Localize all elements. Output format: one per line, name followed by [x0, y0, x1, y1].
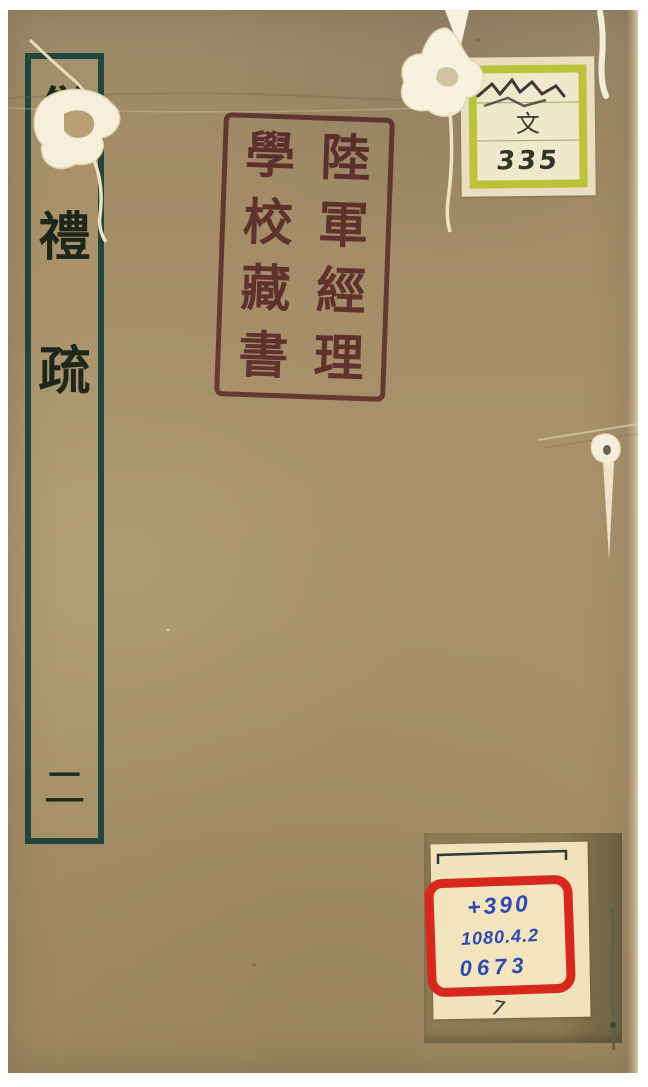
classification-category-row: 文: [477, 102, 579, 141]
title-character-3: 疏: [31, 346, 98, 398]
library-seal-stamp: 學 校 藏 書 陸 軍 經 理: [214, 112, 395, 402]
seal-character: 陸: [320, 133, 372, 185]
title-character-1: 儀: [31, 87, 98, 139]
seal-character: 學: [244, 130, 296, 182]
paper-tear-tail: [603, 462, 614, 560]
call-number-line-1: +390: [439, 890, 558, 921]
classification-label: 文 335: [460, 56, 595, 196]
seal-right-column: 陸 軍 經 理: [300, 124, 385, 392]
seal-character: 理: [313, 332, 365, 384]
seal-character: 藏: [240, 263, 292, 315]
seal-character: 校: [242, 197, 294, 249]
seal-character: 軍: [318, 199, 370, 251]
call-number-line-3: 0673: [435, 953, 554, 981]
call-number-line-2: 1080.4.2: [441, 924, 560, 948]
crease-line: [538, 424, 638, 440]
paper-tear-shadow: [436, 67, 458, 86]
classification-number-row: 335: [475, 140, 582, 180]
paper-tear-tail: [447, 112, 451, 232]
paper-tear: [600, 12, 606, 96]
book-cover-photo: 儀 禮 疏 二 學 校 藏 書 陸 軍 經 理: [8, 10, 638, 1073]
title-slip: 儀 禮 疏 二: [25, 53, 104, 844]
category-character: 文: [516, 104, 540, 139]
shelf-number: 335: [495, 145, 562, 176]
seal-character: 書: [237, 330, 289, 382]
speck: [476, 38, 480, 42]
classification-label-border: 文 335: [468, 64, 587, 188]
cover-right-edge: [627, 10, 638, 1073]
volume-number: 二: [31, 767, 98, 809]
scan-page: 儀 禮 疏 二 學 校 藏 書 陸 軍 經 理: [0, 0, 648, 1087]
paper-tear: [445, 10, 469, 50]
title-character-2: 禮: [31, 212, 98, 264]
crease-line: [544, 434, 638, 448]
paper-tear-hole: [603, 445, 611, 455]
classification-scribble-row: [476, 72, 578, 103]
call-number-red-box: +390 1080.4.2 0673: [424, 874, 576, 997]
speck: [167, 629, 170, 632]
seal-left-column: 學 校 藏 書: [224, 121, 309, 389]
speck: [252, 963, 256, 967]
seal-character: 經: [315, 266, 367, 318]
paper-tear: [591, 434, 620, 463]
